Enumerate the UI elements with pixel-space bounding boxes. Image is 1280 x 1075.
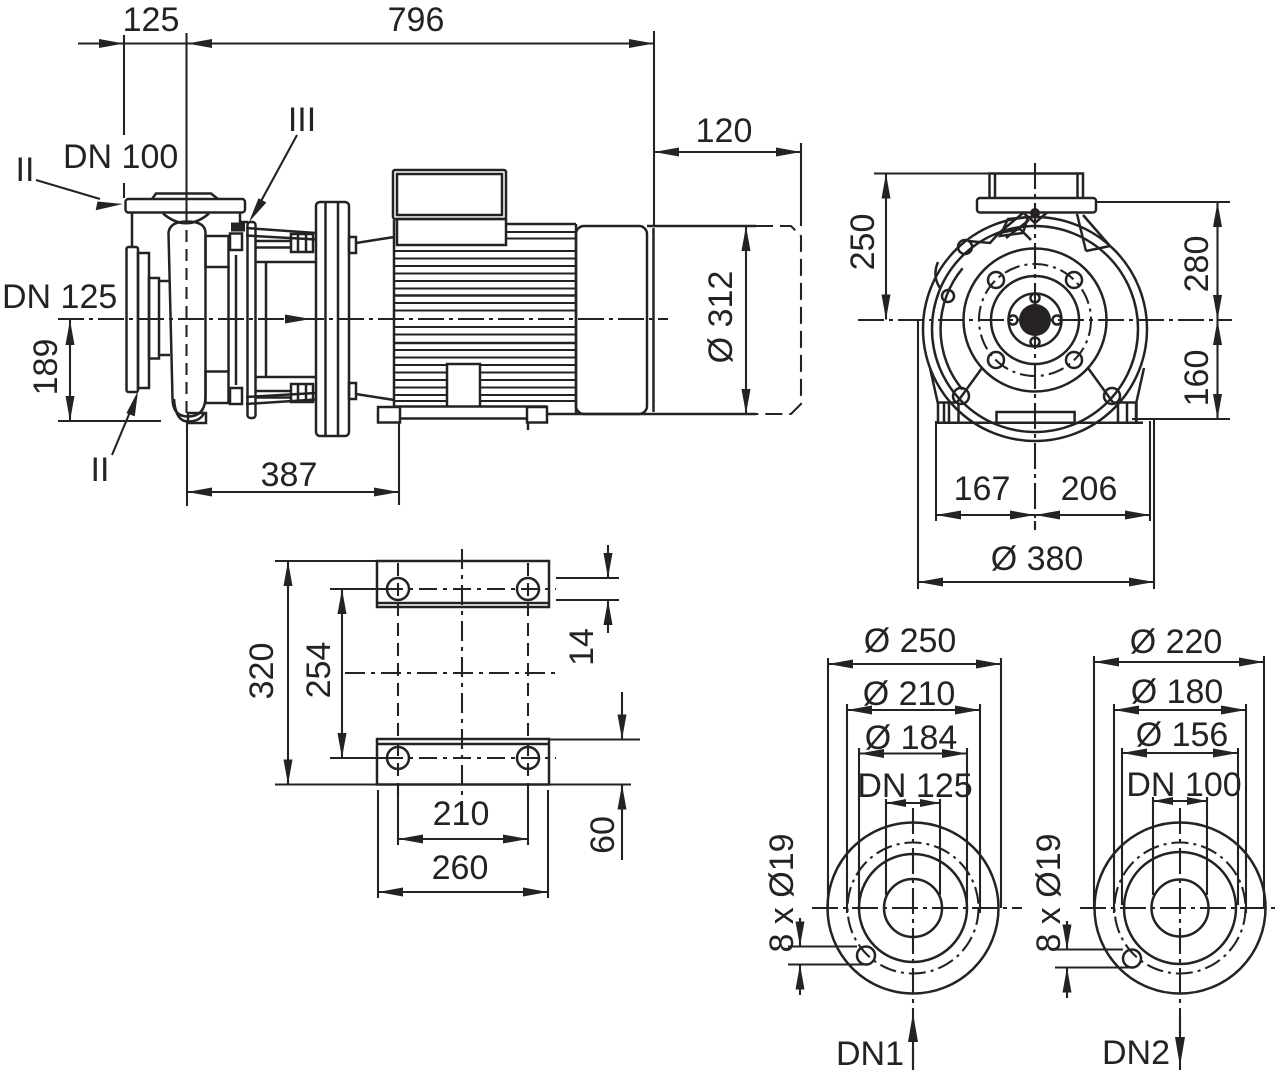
svg-text:125: 125 — [123, 1, 180, 39]
svg-text:206: 206 — [1061, 470, 1118, 508]
svg-text:160: 160 — [1178, 350, 1216, 407]
svg-text:387: 387 — [261, 456, 318, 494]
svg-text:DN 125: DN 125 — [857, 767, 972, 805]
svg-text:III: III — [288, 101, 316, 139]
svg-text:Ø 380: Ø 380 — [991, 540, 1084, 578]
svg-text:796: 796 — [388, 1, 445, 39]
svg-text:Ø 312: Ø 312 — [702, 271, 740, 364]
svg-text:260: 260 — [432, 849, 489, 887]
svg-text:Ø 250: Ø 250 — [864, 622, 957, 660]
svg-text:210: 210 — [433, 795, 490, 833]
svg-text:60: 60 — [584, 816, 622, 854]
svg-text:250: 250 — [844, 214, 882, 271]
svg-text:Ø 210: Ø 210 — [863, 675, 956, 713]
svg-text:DN 100: DN 100 — [63, 138, 178, 176]
svg-text:280: 280 — [1178, 236, 1216, 293]
svg-text:320: 320 — [243, 643, 281, 700]
svg-text:Ø 180: Ø 180 — [1131, 673, 1224, 711]
svg-text:14: 14 — [563, 628, 601, 666]
svg-text:120: 120 — [696, 112, 753, 150]
svg-text:167: 167 — [954, 470, 1011, 508]
svg-text:DN 100: DN 100 — [1126, 766, 1241, 804]
svg-text:8 x Ø19: 8 x Ø19 — [1030, 833, 1068, 952]
svg-text:DN 125: DN 125 — [2, 278, 117, 316]
svg-text:Ø 220: Ø 220 — [1130, 623, 1223, 661]
svg-text:254: 254 — [300, 642, 338, 699]
svg-text:DN2: DN2 — [1102, 1034, 1170, 1072]
svg-text:II: II — [91, 451, 110, 489]
svg-text:Ø 156: Ø 156 — [1136, 716, 1229, 754]
svg-text:II: II — [16, 151, 35, 189]
svg-text:189: 189 — [27, 339, 65, 396]
svg-text:8 x Ø19: 8 x Ø19 — [763, 833, 801, 952]
svg-text:DN1: DN1 — [836, 1035, 904, 1073]
